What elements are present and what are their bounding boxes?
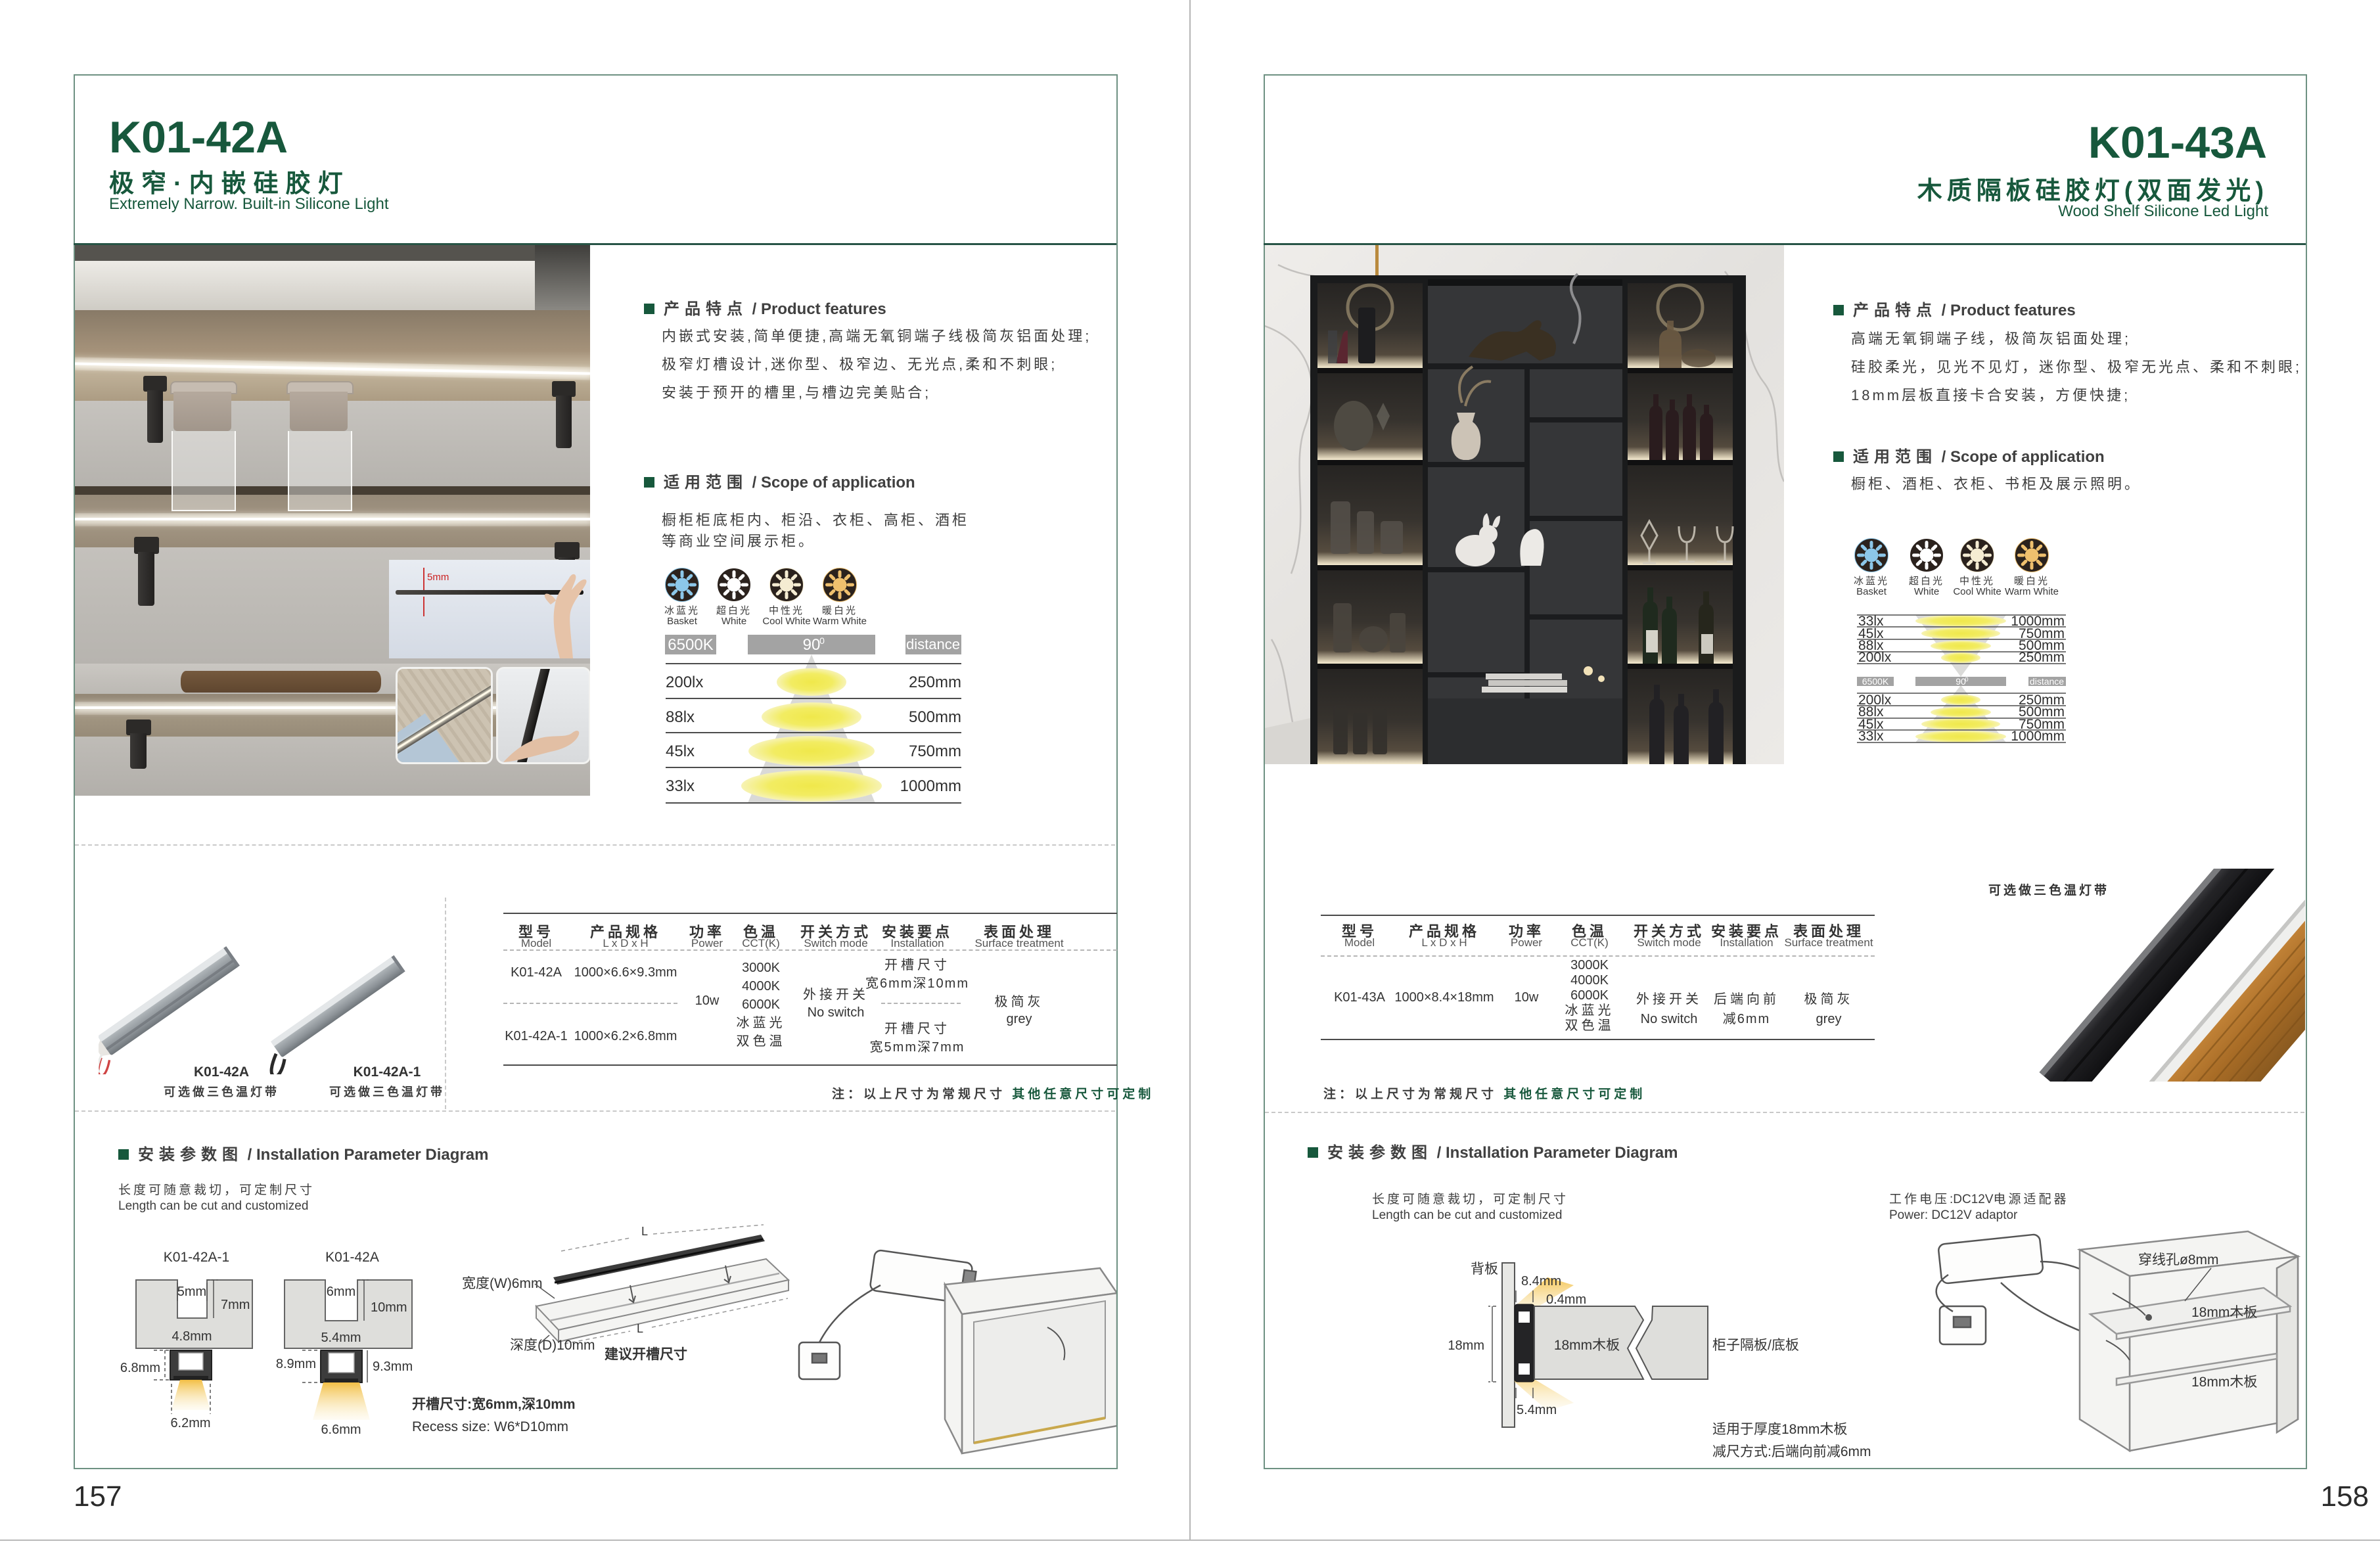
svg-text:5.4mm: 5.4mm (321, 1331, 361, 1345)
svg-text:中性光: 中性光 (769, 605, 804, 616)
svg-text:33lx: 33lx (666, 777, 695, 795)
svg-text:暖白光: 暖白光 (2014, 576, 2049, 587)
svg-text:暖白光: 暖白光 (822, 605, 858, 616)
svg-text:1000mm: 1000mm (900, 777, 961, 795)
svg-text:Recess size: W6*D10mm: Recess size: W6*D10mm (412, 1419, 568, 1434)
svg-text:适用于厚度18mm木板: 适用于厚度18mm木板 (1712, 1422, 1847, 1437)
svg-text:500mm: 500mm (909, 708, 961, 726)
svg-text:33lx: 33lx (1858, 729, 1884, 744)
svg-text:L: L (641, 1225, 648, 1238)
svg-text:10mm: 10mm (371, 1300, 407, 1315)
svg-text:distance: distance (2030, 676, 2064, 687)
svg-text:K01-42A: K01-42A (325, 1250, 379, 1265)
svg-text:750mm: 750mm (909, 742, 961, 760)
svg-text:4.8mm: 4.8mm (172, 1329, 212, 1344)
svg-text:开槽尺寸:宽6mm,深10mm: 开槽尺寸:宽6mm,深10mm (412, 1396, 576, 1412)
svg-text:0: 0 (1965, 676, 1968, 683)
svg-text:深度(D)10mm: 深度(D)10mm (510, 1338, 595, 1353)
svg-text:6.8mm: 6.8mm (120, 1361, 160, 1375)
svg-text:建议开槽尺寸: 建议开槽尺寸 (605, 1346, 687, 1362)
svg-text:45lx: 45lx (666, 742, 695, 760)
svg-text:K01-42A-1: K01-42A-1 (164, 1250, 229, 1265)
svg-text:Warm White: Warm White (813, 616, 867, 627)
svg-text:8.4mm: 8.4mm (1521, 1274, 1561, 1289)
svg-text:穿线孔ø8mm: 穿线孔ø8mm (2138, 1252, 2219, 1267)
svg-text:Basket: Basket (667, 616, 698, 627)
svg-text:250mm: 250mm (2019, 650, 2065, 665)
svg-text:18mm木板: 18mm木板 (1554, 1338, 1620, 1353)
svg-text:18mm: 18mm (1448, 1338, 1484, 1353)
svg-text:0.4mm: 0.4mm (1546, 1292, 1586, 1307)
svg-text:White: White (721, 616, 746, 627)
svg-text:L: L (637, 1322, 643, 1335)
svg-text:6.2mm: 6.2mm (170, 1416, 210, 1430)
svg-text:White: White (1914, 586, 1939, 597)
svg-text:宽度(W)6mm: 宽度(W)6mm (462, 1276, 542, 1291)
svg-text:5mm: 5mm (177, 1285, 206, 1299)
svg-text:200lx: 200lx (666, 673, 703, 691)
svg-text:1000mm: 1000mm (2011, 729, 2065, 744)
svg-text:减尺方式:后端向前减6mm: 减尺方式:后端向前减6mm (1712, 1444, 1871, 1459)
svg-text:6.6mm: 6.6mm (321, 1423, 361, 1437)
svg-text:200lx: 200lx (1858, 650, 1892, 665)
svg-text:88lx: 88lx (666, 708, 695, 726)
svg-text:distance: distance (906, 636, 960, 652)
svg-text:中性光: 中性光 (1959, 576, 1995, 587)
svg-text:柜子隔板/底板: 柜子隔板/底板 (1712, 1338, 1799, 1353)
svg-text:冰蓝光: 冰蓝光 (1854, 576, 1889, 587)
svg-text:5.4mm: 5.4mm (1517, 1403, 1557, 1417)
svg-text:Warm White: Warm White (2005, 586, 2059, 597)
svg-text:8.9mm: 8.9mm (276, 1357, 316, 1371)
svg-text:18mm木板: 18mm木板 (2191, 1305, 2257, 1320)
svg-text:250mm: 250mm (909, 673, 961, 691)
svg-text:18mm木板: 18mm木板 (2191, 1375, 2257, 1390)
svg-text:Cool White: Cool White (762, 616, 810, 627)
svg-text:9.3mm: 9.3mm (373, 1359, 413, 1374)
svg-text:6500K: 6500K (1862, 676, 1889, 687)
svg-text:0: 0 (819, 635, 825, 646)
svg-text:冰蓝光: 冰蓝光 (664, 605, 700, 616)
svg-text:6500K: 6500K (668, 636, 713, 654)
svg-text:超白光: 超白光 (716, 605, 752, 616)
svg-text:Cool White: Cool White (1953, 586, 2001, 597)
svg-text:超白光: 超白光 (1909, 576, 1944, 587)
svg-text:背板: 背板 (1471, 1262, 1498, 1277)
svg-text:Basket: Basket (1856, 586, 1887, 597)
svg-text:90: 90 (803, 636, 821, 654)
svg-text:6mm: 6mm (327, 1285, 355, 1299)
svg-text:7mm: 7mm (221, 1298, 250, 1312)
